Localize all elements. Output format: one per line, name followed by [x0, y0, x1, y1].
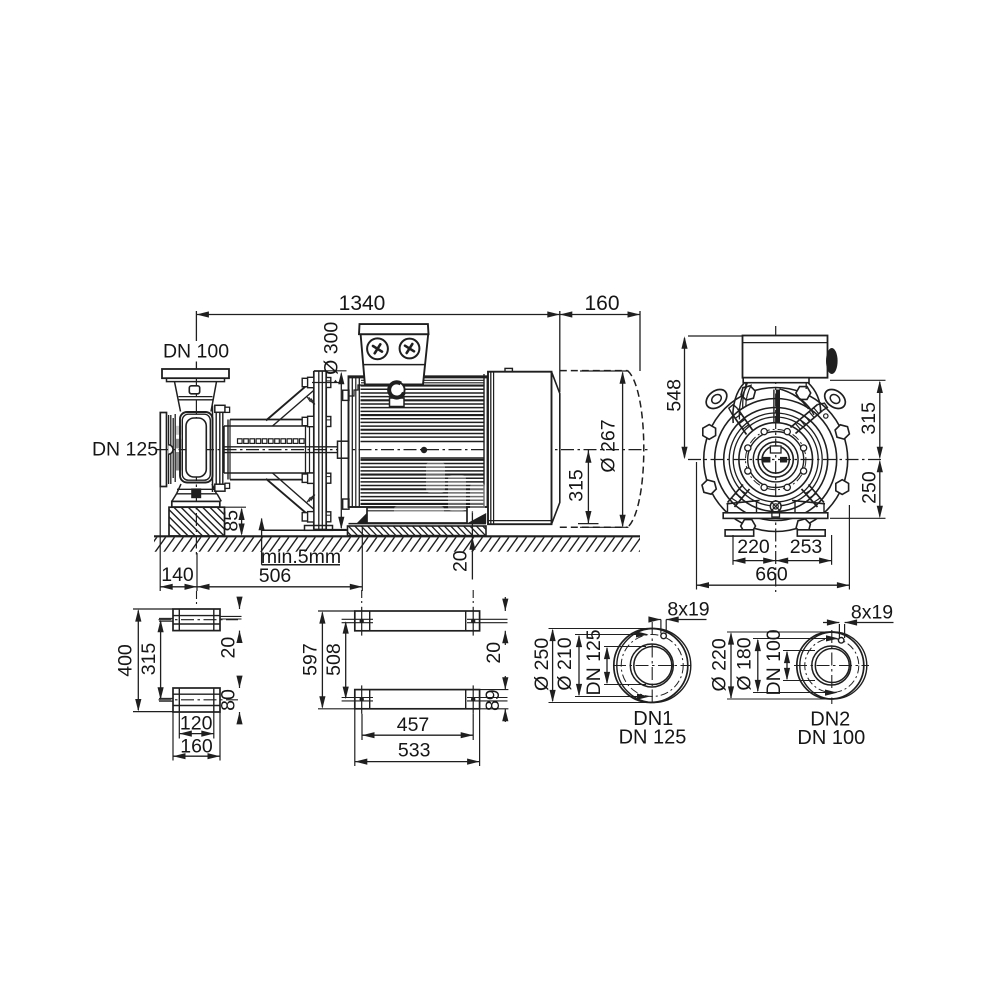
- svg-text:120: 120: [180, 712, 213, 734]
- svg-text:DN 100: DN 100: [797, 727, 865, 749]
- svg-text:DN 125: DN 125: [92, 438, 158, 460]
- svg-text:160: 160: [584, 292, 619, 315]
- svg-text:220: 220: [737, 536, 770, 558]
- svg-text:253: 253: [790, 536, 823, 558]
- svg-text:597: 597: [300, 643, 322, 676]
- svg-text:250: 250: [858, 471, 880, 504]
- svg-text:Ø 267: Ø 267: [597, 419, 619, 472]
- svg-text:20: 20: [449, 550, 471, 572]
- svg-text:Ø 210: Ø 210: [554, 637, 576, 690]
- svg-text:508: 508: [323, 643, 345, 676]
- svg-text:80: 80: [218, 689, 240, 711]
- svg-text:85: 85: [221, 510, 243, 532]
- svg-text:Ø 300: Ø 300: [321, 322, 343, 375]
- svg-text:1340: 1340: [339, 292, 386, 315]
- svg-text:20: 20: [483, 642, 505, 664]
- svg-text:DN 100: DN 100: [163, 340, 229, 362]
- svg-text:315: 315: [565, 469, 587, 502]
- svg-text:8x19: 8x19: [667, 599, 709, 621]
- svg-text:533: 533: [398, 740, 431, 762]
- svg-text:457: 457: [397, 714, 430, 736]
- svg-text:DN 125: DN 125: [583, 629, 605, 695]
- svg-text:400: 400: [115, 644, 137, 677]
- svg-text:160: 160: [180, 735, 213, 757]
- svg-text:DN 100: DN 100: [763, 629, 785, 695]
- svg-text:Ø 220: Ø 220: [708, 638, 730, 691]
- svg-text:DN 125: DN 125: [619, 726, 687, 748]
- svg-text:506: 506: [259, 565, 292, 587]
- svg-text:89: 89: [482, 689, 504, 711]
- svg-text:140: 140: [161, 564, 194, 586]
- svg-text:548: 548: [663, 379, 685, 412]
- svg-text:8x19: 8x19: [851, 601, 893, 623]
- svg-text:660: 660: [755, 564, 788, 586]
- svg-text:Ø 250: Ø 250: [531, 638, 553, 691]
- svg-text:315: 315: [138, 643, 160, 676]
- svg-text:20: 20: [217, 637, 239, 659]
- svg-text:Ø 180: Ø 180: [734, 637, 756, 690]
- svg-text:315: 315: [858, 402, 880, 435]
